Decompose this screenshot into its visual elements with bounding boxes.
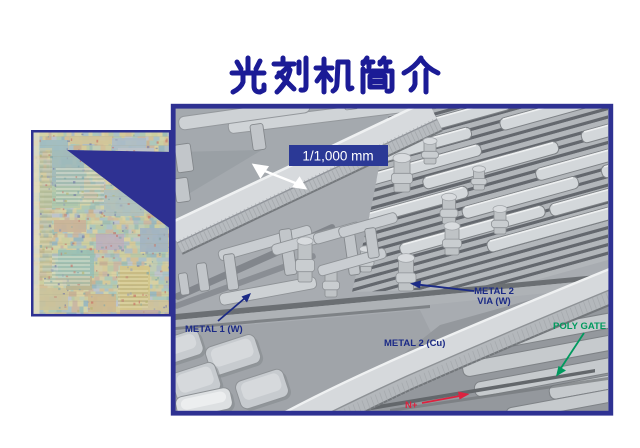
svg-text:1/1,000 mm: 1/1,000 mm xyxy=(302,149,373,164)
svg-text:N+: N+ xyxy=(405,400,418,411)
svg-text:METAL 2 (Cu): METAL 2 (Cu) xyxy=(384,338,445,349)
svg-text:POLY GATE: POLY GATE xyxy=(553,321,606,332)
svg-text:VIA (W): VIA (W) xyxy=(477,296,510,307)
svg-text:METAL 1 (W): METAL 1 (W) xyxy=(185,324,243,335)
